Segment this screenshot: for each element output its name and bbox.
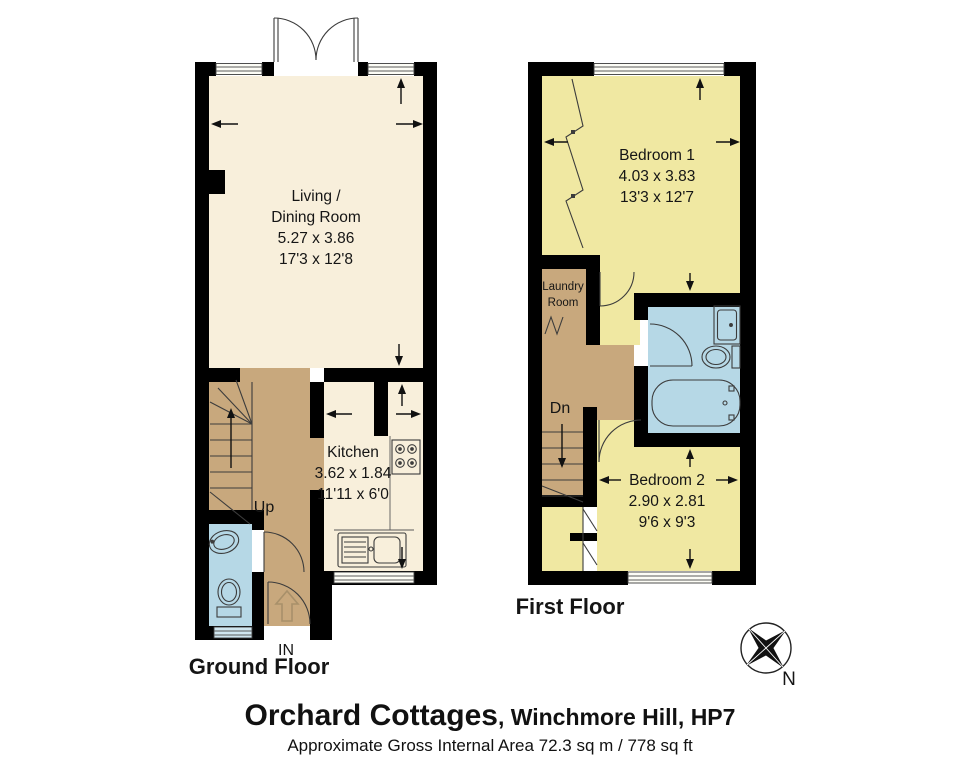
floorplan-page: Living / Dining Room 5.27 x 3.86 17'3 x … (0, 0, 980, 777)
living-room-window-left (216, 64, 262, 75)
living-room-dim-metric: 5.27 x 3.86 (278, 230, 355, 247)
living-room-label-line1: Living / (291, 188, 341, 205)
property-name: Orchard Cottages (245, 699, 498, 732)
kitchen-label: Kitchen (327, 444, 379, 461)
floorplan-drawing: Living / Dining Room 5.27 x 3.86 17'3 x … (0, 0, 980, 698)
bedroom1-label: Bedroom 1 (619, 147, 695, 164)
first-floor-plan: Bedroom 1 4.03 x 3.83 13'3 x 12'7 Laundr… (516, 62, 756, 619)
stairs-up-label: Up (254, 499, 275, 516)
compass-rose: N (741, 623, 796, 690)
laundry-label-line1: Laundry (542, 281, 584, 293)
first-floor-title: First Floor (516, 594, 625, 619)
bedroom2-window (628, 572, 712, 583)
wc-window (214, 627, 252, 638)
kitchen-dim-imperial: 11'11 x 6'0 (317, 486, 389, 503)
living-room-window-right (368, 64, 414, 75)
stairs-down-label: Dn (550, 400, 570, 417)
bedroom2-dim-metric: 2.90 x 2.81 (629, 493, 706, 510)
living-room-label-line2: Dining Room (271, 209, 361, 226)
kitchen-dim-metric: 3.62 x 1.84 (315, 465, 392, 482)
property-location: , Winchmore Hill, HP7 (498, 704, 736, 730)
kitchen-doorway-floor (310, 438, 324, 490)
hall-opening-floor (240, 368, 310, 382)
bedroom1-window (594, 64, 724, 75)
bedroom2-label: Bedroom 2 (629, 472, 705, 489)
area-summary: Approximate Gross Internal Area 72.3 sq … (0, 736, 980, 756)
ground-floor-plan: Living / Dining Room 5.27 x 3.86 17'3 x … (189, 18, 437, 679)
bedroom1-dim-metric: 4.03 x 3.83 (619, 168, 696, 185)
property-title-line: Orchard Cottages, Winchmore Hill, HP7 (0, 699, 980, 733)
laundry-label-line2: Room (548, 297, 579, 309)
french-doors (274, 18, 358, 62)
title-block: Orchard Cottages, Winchmore Hill, HP7 Ap… (0, 699, 980, 756)
bedroom1-dim-imperial: 13'3 x 12'7 (620, 189, 694, 206)
ground-floor-title: Ground Floor (189, 654, 330, 679)
living-room-dim-imperial: 17'3 x 12'8 (279, 251, 353, 268)
compass-north-label: N (782, 669, 796, 690)
bedroom2-dim-imperial: 9'6 x 9'3 (639, 514, 696, 531)
kitchen-window (334, 572, 414, 583)
